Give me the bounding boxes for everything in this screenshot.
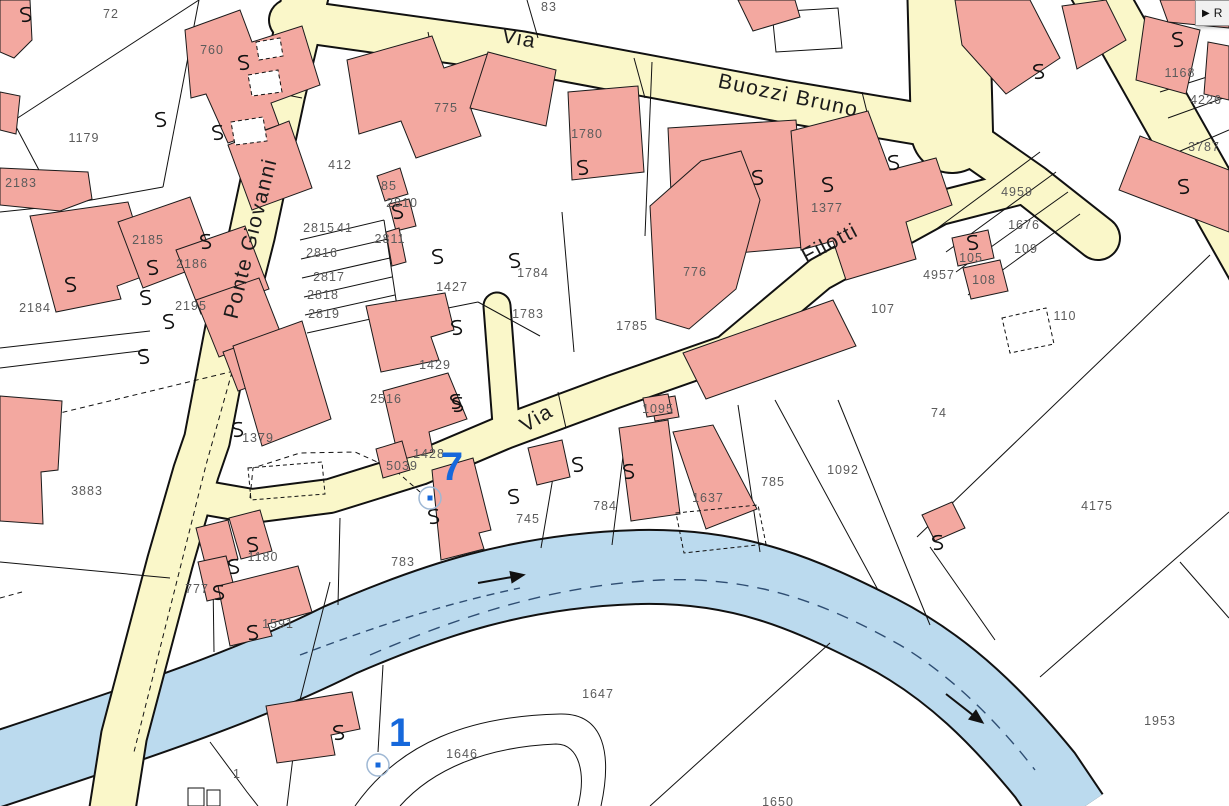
parcel-number-label: 2816 [306,246,338,260]
parcel-number-label: 108 [972,273,996,287]
parcel-number-label: 776 [683,265,707,279]
marker-point-icon [376,763,381,768]
building-link-symbol [139,350,148,364]
parcel-number-label: 1591 [262,617,294,631]
marker-point-icon [428,496,433,501]
parcel-number-label: 1646 [446,747,478,761]
parcel-number-label: 1 [233,767,241,781]
parcel-number-label: 105 [959,251,983,265]
parcel-number-label: 3787 [1188,140,1220,154]
parcel-number-label: 2184 [19,301,51,315]
parcel-number-label: 2819 [308,307,340,321]
parcel-number-label: 775 [434,101,458,115]
parcel-number-label: 1784 [517,266,549,280]
building-link-symbol [509,490,518,504]
building-link-symbol [889,156,898,170]
parcel-number-label: 1168 [1165,66,1196,80]
parcel-number-label: 412 [328,158,352,172]
parcel-number-label: 2516 [370,392,402,406]
parcel-number-label: 2195 [175,299,207,313]
parcel-number-label: 1429 [419,358,451,372]
map-viewer: 7276083775178041285281013771168422637871… [0,0,1229,806]
parcel-number-label: 1180 [248,550,279,564]
expand-panel-button[interactable]: ▶ R [1195,0,1229,26]
map-marker-1[interactable]: 1 [367,711,411,776]
parcel-number-label: 1650 [762,795,794,806]
parcel-number-label: 2810 [386,196,418,210]
marker-number-label: 7 [441,445,463,489]
parcel-number-label: 4959 [1001,185,1033,199]
parcel-number-label: 2818 [307,288,339,302]
parcel-number-label: 785 [761,475,785,489]
parcel-number-label: 1783 [512,307,544,321]
parcel-number-label: 784 [593,499,617,513]
parcel-number-label: 1647 [582,687,614,701]
parcel-number-label: 4957 [923,268,955,282]
parcel-number-label: 107 [871,302,895,316]
parcel-number-label: 110 [1054,309,1077,323]
parcel-number-label: 4226 [1190,93,1222,107]
parcel-number-label: 1377 [811,201,843,215]
parcel-number-label: 2817 [313,270,345,284]
parcel-number-label: 2186 [176,257,208,271]
parcel-number-label: 1095 [642,402,674,416]
parcel-number-label: 2185 [132,233,164,247]
parcel-number-label: 4175 [1081,499,1113,513]
parcel-number-label: 83 [541,0,557,14]
expand-panel-label: R [1214,6,1223,20]
building-link-symbol [433,250,442,264]
marker-number-label: 1 [389,711,411,755]
parcel-number-label: 777 [185,582,209,596]
building-link-symbol [164,315,173,329]
parcel-number-label: 2183 [5,176,37,190]
parcel-number-label: 2815 [303,221,335,235]
building-link-symbol [573,458,582,472]
parcel-number-label: 1179 [69,131,100,145]
parcel-number-label: 1676 [1008,218,1040,232]
parcel-number-label: 1780 [571,127,603,141]
parcel-number-label: 72 [103,7,119,21]
parcel-number-label: 74 [931,406,947,420]
parcel-number-label: 2811 [375,232,406,246]
building-link-symbol [141,291,150,305]
parcel-number-label: 1785 [616,319,648,333]
parcel-number-label: 5039 [386,459,418,473]
building-link-symbol [156,113,165,127]
parcel-number-label: 1379 [242,431,274,445]
parcel-number-label: 1637 [692,491,724,505]
track-curve [400,744,581,806]
parcel-number-label: 783 [391,555,415,569]
parcel-number-label: 41 [337,221,353,235]
parcel-number-label: 1092 [827,463,859,477]
parcel-number-label: 109 [1014,242,1038,256]
map-canvas[interactable]: 7276083775178041285281013771168422637871… [0,0,1229,806]
parcel-number-label: 3883 [71,484,103,498]
parcel-number-label: 85 [381,179,397,193]
parcel-number-label: 1427 [436,280,468,294]
parcel-number-label: 745 [516,512,540,526]
expand-panel-arrow-icon: ▶ [1202,8,1210,19]
parcel-number-label: 760 [200,43,224,57]
parcel-number-label: 1953 [1144,714,1176,728]
